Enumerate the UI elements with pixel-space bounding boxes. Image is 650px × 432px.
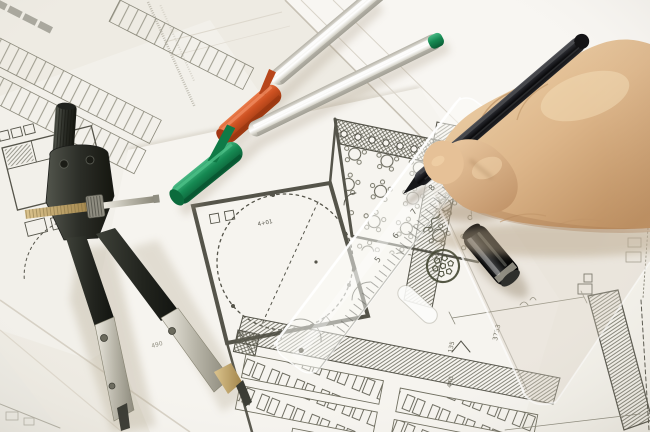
photo-architect-workspace: 4+01 xyxy=(0,0,650,432)
photo-vignette xyxy=(0,0,650,432)
workspace-scene: 4+01 xyxy=(0,0,650,432)
